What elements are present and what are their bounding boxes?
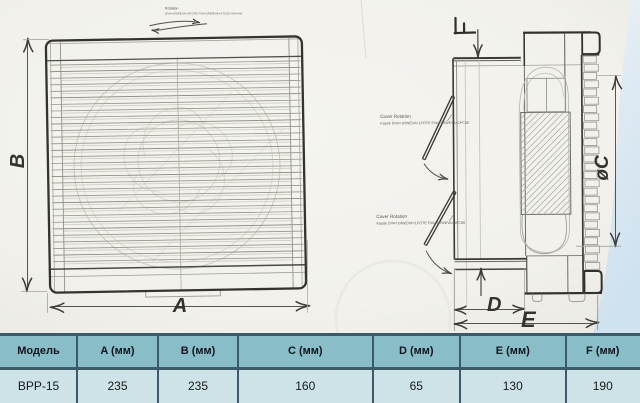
- svg-text:D: D: [487, 294, 501, 316]
- svg-text:Kapak DVA=1RWEVA=1FOTE FVA=1RW: Kapak DVA=1RWEVA=1FOTE FVA=1RWEVA=1FC00: [380, 121, 469, 126]
- svg-text:A: A: [172, 295, 187, 317]
- svg-text:Rotation: Rotation: [165, 7, 178, 11]
- svg-text:B: B: [7, 154, 29, 168]
- svg-text:Cover Rotation: Cover Rotation: [380, 114, 411, 119]
- svg-text:E: E: [521, 307, 537, 332]
- svg-text:DVA=1RWEVA=1FOTE FVA=1RWEVA=1T: DVA=1RWEVA=1FOTE FVA=1RWEVA=1TC00 HVA=00: [165, 12, 242, 16]
- svg-text:øC: øC: [592, 155, 613, 181]
- svg-text:Kapak DVA=1RWEVA=1FOTE FVA=1RW: Kapak DVA=1RWEVA=1FOTE FVA=1RWEVA=1FC00: [376, 221, 465, 226]
- svg-text:Cover Rotation: Cover Rotation: [376, 214, 407, 219]
